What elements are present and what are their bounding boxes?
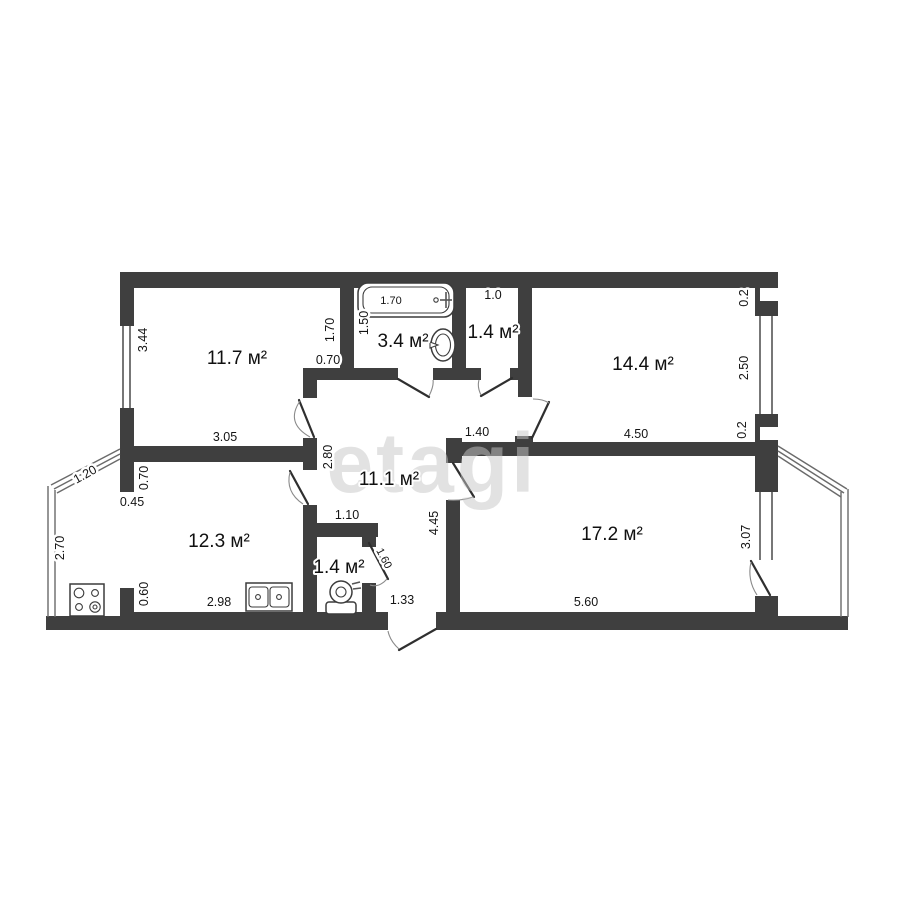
dim-hallway-bottom: 1.33 [390, 593, 414, 607]
dim-balcony-left-slant: 1.20 [71, 462, 99, 486]
window-bedroom-top-left [120, 326, 134, 408]
floor-plan-drawing: etagi 11.7 м² 3.4 м² 1.4 м² 14.4 м² 11.1… [0, 0, 900, 900]
room-label-bedroom-top-left: 11.7 м² [207, 348, 267, 369]
room-label-bathroom: 3.4 м² [377, 331, 428, 352]
dim-bedroom-top-right-offset-top: 0.2 [737, 289, 751, 306]
dim-bathroom-left: 1.50 [357, 311, 371, 335]
dim-kitchen-width: 2.98 [207, 595, 231, 609]
window-bedroom-top-right [755, 316, 778, 414]
dim-balcony-left-height: 2.70 [53, 536, 67, 560]
room-label-kitchen: 12.3 м² [188, 531, 250, 552]
dim-bedroom-top-left-height: 3.44 [136, 328, 150, 352]
dim-kitchen-top-left: 0.70 [137, 466, 151, 490]
dim-bedroom-top-right-window: 2.50 [737, 356, 751, 380]
dim-hallway-opening: 1.40 [465, 425, 489, 439]
dim-bathtub-length: 1.70 [380, 295, 401, 307]
room-label-wc-bottom: 1.4 м² [313, 557, 364, 578]
dim-wc-top-width: 1.0 [484, 288, 501, 302]
kitchen-sink-icon [246, 583, 292, 611]
floor-plan-page: etagi 11.7 м² 3.4 м² 1.4 м² 14.4 м² 11.1… [0, 0, 900, 900]
toilet-icon [326, 581, 361, 614]
room-label-hallway: 11.1 м² [359, 469, 419, 490]
dim-kitchen-bottom-left: 0.60 [137, 582, 151, 606]
window-living-room [755, 492, 778, 560]
dim-kitchen-opening: 0.45 [120, 495, 144, 509]
dim-hallway-height: 4.45 [427, 511, 441, 535]
bathtub-icon [358, 283, 454, 317]
dim-bedroom-top-right-offset-bottom: 0.2 [735, 421, 749, 438]
dim-living-room-window: 3.07 [739, 525, 753, 549]
bathroom-sink-icon [430, 329, 455, 361]
dim-bedroom-top-left-right: 1.70 [323, 318, 337, 342]
dim-hallway-left: 2.80 [321, 445, 335, 469]
dim-wc-bottom-width: 1.10 [335, 508, 359, 522]
dim-living-room-width: 5.60 [574, 595, 598, 609]
balcony-right-glazing [778, 446, 848, 617]
dim-bedroom-top-left-door: 0.70 [316, 353, 340, 367]
dim-bedroom-top-left-width: 3.05 [213, 430, 237, 444]
room-label-wc-top: 1.4 м² [467, 322, 518, 343]
watermark: etagi [326, 416, 537, 510]
room-label-bedroom-top-right: 14.4 м² [612, 354, 674, 375]
stove-icon [70, 584, 104, 616]
room-label-living-room: 17.2 м² [581, 524, 643, 545]
dim-bedroom-top-right-width: 4.50 [624, 427, 648, 441]
